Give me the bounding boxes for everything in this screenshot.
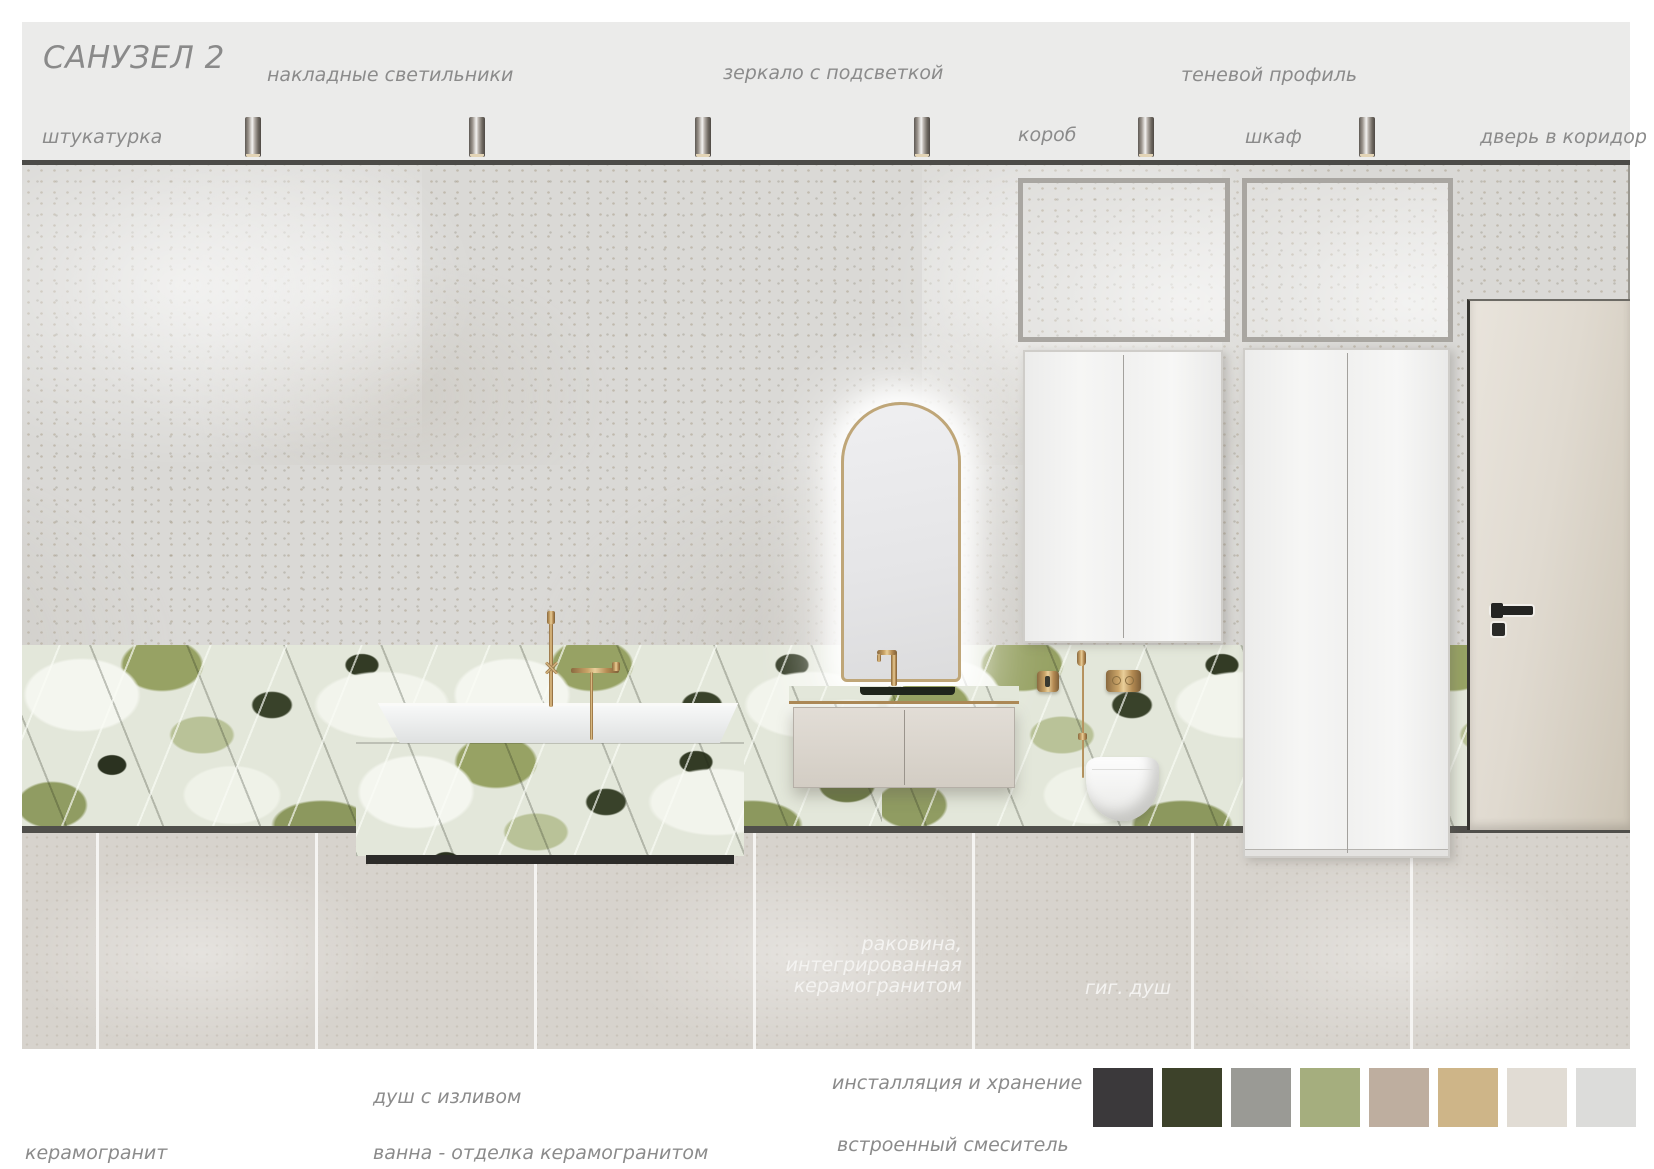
tub-handshower-hose (590, 672, 593, 740)
mixer-lever (1045, 676, 1050, 687)
palette-swatch (1231, 1068, 1291, 1127)
door-handle (1491, 606, 1533, 615)
bathtub-plinth (366, 855, 734, 864)
hyg-shower-rail (1082, 656, 1084, 778)
callout-backlit-mirror: зеркало с подсветкой (723, 62, 943, 84)
legend-built-in-mixer: встроенный смеситель (837, 1134, 1069, 1156)
callout-plaster: штукатурка (42, 126, 162, 148)
callout-wardrobe: шкаф (1245, 126, 1302, 148)
palette-swatch (1369, 1068, 1429, 1127)
ceiling-light-icon (245, 117, 261, 157)
integrated-sink-recess (860, 687, 955, 695)
ceiling-light-icon (695, 117, 711, 157)
callout-duct-box: короб (1018, 124, 1077, 146)
legend-installation: инсталляция и хранение (832, 1072, 1082, 1094)
wardrobe-cabinet (1243, 348, 1450, 858)
ceiling-light-icon (914, 117, 930, 157)
callout-corridor-door: дверь в коридор (1480, 126, 1647, 148)
legend-bath-finish: ванна - отделка керамогранитом (373, 1142, 708, 1164)
callout-surface-lights: накладные светильники (267, 64, 513, 86)
flush-plate (1106, 670, 1141, 692)
callout-shadow-profile: теневой профиль (1181, 64, 1357, 86)
palette-swatch (1093, 1068, 1153, 1127)
palette-swatch (1300, 1068, 1360, 1127)
ceiling-light-icon (469, 117, 485, 157)
backlit-arched-mirror (841, 402, 961, 682)
duct-box-panel (1018, 178, 1230, 342)
vanity-countertop (789, 686, 1019, 704)
door-lock (1492, 623, 1505, 636)
wardrobe-panel (1242, 178, 1453, 342)
bathtub-marble-front (356, 742, 744, 856)
label-integrated-sink: раковина, интегрированная керамогранитом (770, 934, 962, 997)
vanity-faucet-nose (877, 654, 881, 662)
palette (1093, 1068, 1636, 1127)
vanity-drawers (793, 707, 1015, 788)
flush-button-2 (1125, 676, 1134, 685)
ceiling-light-icon (1138, 117, 1154, 157)
duct-box-cabinet (1023, 350, 1223, 643)
vanity-faucet-body (891, 652, 897, 686)
hyg-shower-mixer-plate (1037, 671, 1059, 692)
design-board: САНУЗЕЛ 2 накладные светильники зеркало … (0, 0, 1654, 1169)
page-title: САНУЗЕЛ 2 (43, 40, 225, 76)
tub-filler-finial (547, 611, 555, 624)
header-strip (22, 22, 1630, 160)
palette-swatch (1162, 1068, 1222, 1127)
legend-shower-spout: душ с изливом (373, 1086, 521, 1108)
palette-swatch (1576, 1068, 1636, 1127)
legend-ceramic: керамогранит (25, 1142, 167, 1164)
palette-swatch (1507, 1068, 1567, 1127)
tub-filler-cross-handle (543, 660, 559, 676)
ceiling-light-icon (1359, 117, 1375, 157)
bathtub-basin (374, 703, 742, 743)
hyg-shower-holder (1078, 733, 1087, 740)
tub-spout-handle (612, 662, 620, 671)
hyg-shower-head (1077, 650, 1086, 666)
wardrobe-base (1245, 849, 1448, 856)
corridor-door (1467, 299, 1630, 830)
palette-swatch (1438, 1068, 1498, 1127)
flush-button-1 (1112, 676, 1121, 685)
label-hyg-shower: гиг. душ (1085, 978, 1171, 999)
